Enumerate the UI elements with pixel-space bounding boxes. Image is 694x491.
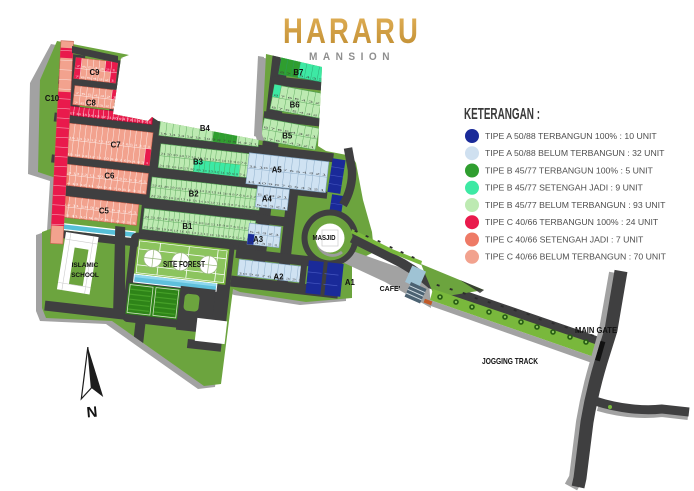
svg-text:C6: C6 <box>104 172 115 181</box>
svg-text:C8: C8 <box>86 99 97 108</box>
svg-text:A2: A2 <box>274 273 285 282</box>
svg-text:B3: B3 <box>193 157 204 166</box>
svg-text:TIPE A 50/88 TERBANGUN 100% :: TIPE A 50/88 TERBANGUN 100% : 10 UNIT <box>485 131 657 141</box>
svg-text:JOGGING TRACK: JOGGING TRACK <box>482 356 539 366</box>
svg-text:MAIN GATE: MAIN GATE <box>575 325 617 335</box>
svg-text:TIPE A 50/88 BELUM TERBANGUN :: TIPE A 50/88 BELUM TERBANGUN : 32 UNIT <box>485 148 665 158</box>
svg-text:C7: C7 <box>111 141 121 150</box>
svg-text:TIPE B 45/77 TERBANGUN 100% :: TIPE B 45/77 TERBANGUN 100% : 5 UNIT <box>485 165 654 175</box>
svg-text:A5: A5 <box>272 165 283 174</box>
svg-text:KETERANGAN :: KETERANGAN : <box>464 106 540 123</box>
svg-text:C9: C9 <box>90 68 101 77</box>
svg-text:B5: B5 <box>282 131 293 140</box>
svg-text:SITE FOREST: SITE FOREST <box>163 259 206 269</box>
svg-text:B6: B6 <box>290 100 301 109</box>
svg-text:TIPE C 40/66 BELUM TERBANGUN :: TIPE C 40/66 BELUM TERBANGUN : 70 UNIT <box>485 252 667 262</box>
svg-text:B1: B1 <box>182 222 193 231</box>
svg-text:B4: B4 <box>200 124 211 133</box>
svg-text:TIPE C 40/66 SETENGAH JADI : 7: TIPE C 40/66 SETENGAH JADI : 7 UNIT <box>485 234 644 244</box>
svg-text:MANSION: MANSION <box>309 51 395 63</box>
svg-text:HARARU: HARARU <box>283 12 421 51</box>
svg-text:MASJID: MASJID <box>313 233 336 242</box>
svg-text:B7: B7 <box>293 68 303 77</box>
svg-text:B2: B2 <box>189 190 200 199</box>
svg-text:A4: A4 <box>262 195 273 204</box>
svg-text:C10: C10 <box>45 94 60 103</box>
svg-text:TIPE B 45/77 BELUM TERBANGUN :: TIPE B 45/77 BELUM TERBANGUN : 93 UNIT <box>485 200 666 210</box>
svg-text:N: N <box>86 404 98 422</box>
svg-text:ISLAMIC: ISLAMIC <box>72 262 99 269</box>
svg-text:SCHOOL: SCHOOL <box>71 272 99 279</box>
svg-text:TIPE C 40/66 TERBANGUN 100% :: TIPE C 40/66 TERBANGUN 100% : 24 UNIT <box>485 217 659 227</box>
svg-text:TIPE B 45/77 SETENGAH JADI : 9: TIPE B 45/77 SETENGAH JADI : 9 UNIT <box>485 183 644 193</box>
svg-text:CAFE': CAFE' <box>380 286 401 293</box>
svg-text:A3: A3 <box>253 235 264 244</box>
svg-text:C5: C5 <box>99 206 110 215</box>
svg-text:A1: A1 <box>345 278 356 287</box>
